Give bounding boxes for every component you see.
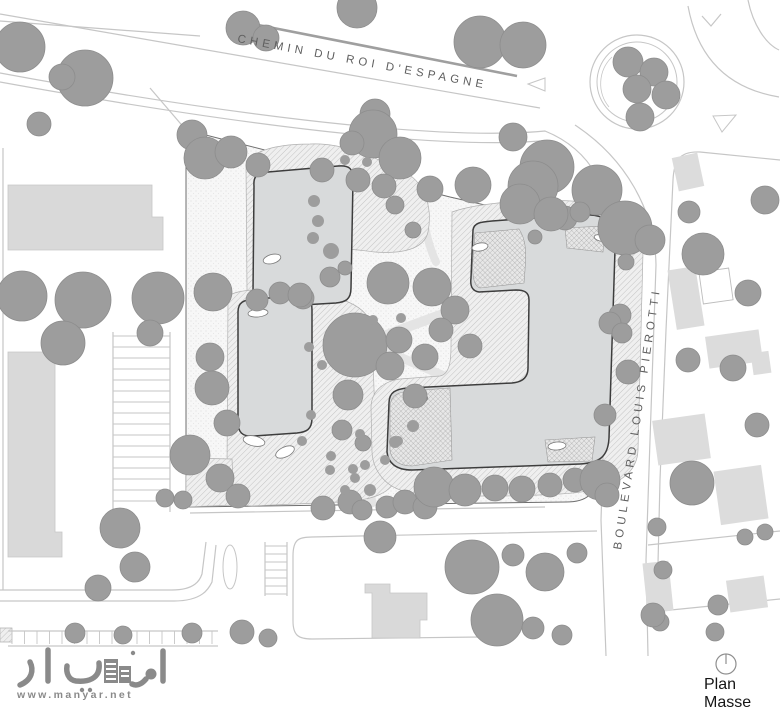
logo-glyph-yaa xyxy=(67,663,99,681)
plan-label-line2: Masse xyxy=(704,694,751,711)
logo-glyph-raa xyxy=(20,662,32,685)
plan-label-line1: Plan xyxy=(704,676,736,693)
logo-glyph-meem-tail xyxy=(132,679,146,685)
logo-arabic-art xyxy=(20,650,163,692)
manyar-logo: www.manyar.net xyxy=(16,650,163,701)
north-indicator-icon xyxy=(716,654,736,674)
logo-building-icon xyxy=(104,659,131,683)
site-plan-svg: CHEMIN DU ROI D'ESPAGNE BOULEVARD LOUIS … xyxy=(0,0,780,717)
site-plan-page: مانيار CHEMIN DU ROI D'ESPAGNE BOULEVARD… xyxy=(0,0,780,717)
logo-dot3 xyxy=(131,651,135,655)
plan-masse-caption: Plan Masse xyxy=(704,654,751,711)
logo-url-text: www.manyar.net xyxy=(16,689,133,701)
